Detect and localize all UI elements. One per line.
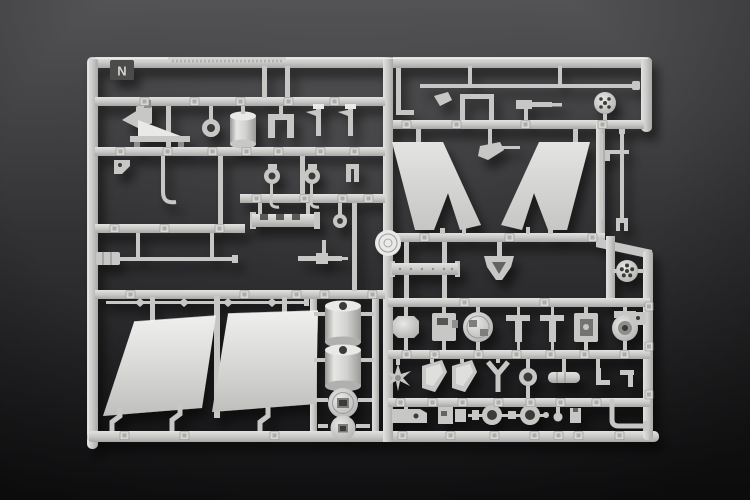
part-funnel-drum-1 bbox=[325, 301, 361, 348]
mold-medallion bbox=[375, 230, 401, 256]
sprue-letter-tab: N bbox=[110, 60, 134, 80]
sprue-photo: N bbox=[0, 0, 750, 500]
part-turret-base-2 bbox=[331, 416, 356, 441]
photo-of-model-kit-sprue: N bbox=[0, 0, 750, 500]
part-funnel-drum-2 bbox=[325, 345, 361, 392]
frame-bottom-rail bbox=[87, 431, 659, 442]
part-small-box-right bbox=[630, 312, 646, 325]
sprue-letter: N bbox=[117, 64, 126, 79]
part-hull-panel-right bbox=[212, 311, 318, 412]
part-turret-base-1 bbox=[328, 388, 358, 418]
mold-text-ridge bbox=[168, 57, 286, 62]
part-block-pair bbox=[438, 407, 466, 424]
part-thin-rod bbox=[600, 133, 603, 219]
rail-cylinder-right bbox=[372, 299, 379, 431]
part-notched-block bbox=[570, 408, 581, 423]
rail-bottom-right-top bbox=[388, 298, 650, 307]
